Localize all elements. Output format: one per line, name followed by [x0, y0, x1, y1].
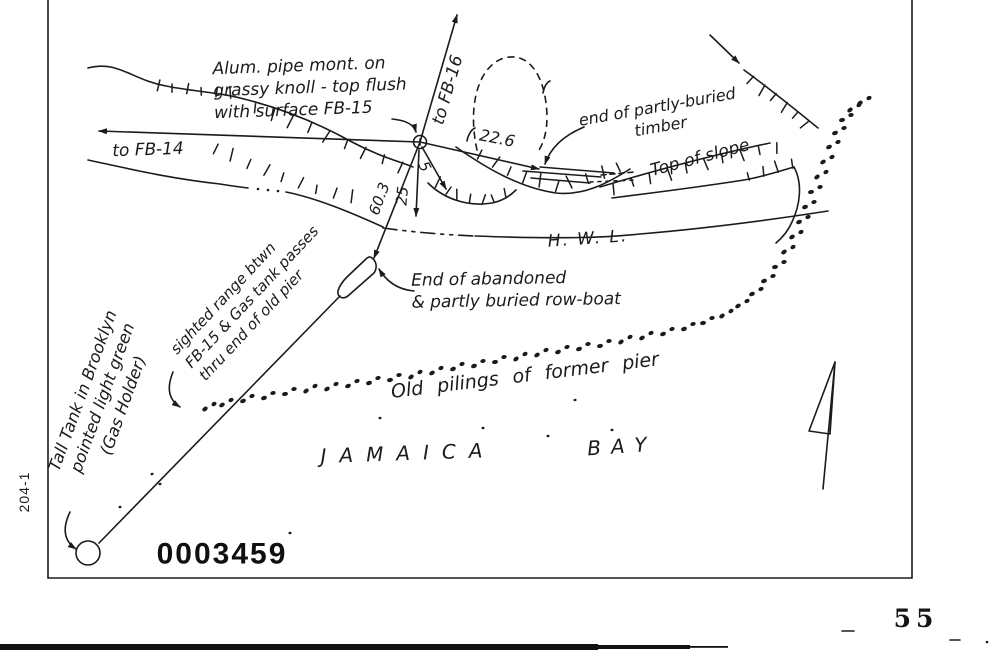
leader-gas-tank [65, 512, 76, 549]
leader-station-note [392, 119, 416, 132]
leader-pier-end [169, 372, 180, 407]
to-fb14-label: to FB-14 [112, 138, 184, 163]
distance-25: 25 [392, 186, 413, 207]
line-dist-25 [416, 150, 419, 216]
gas-tank-symbol [76, 541, 100, 565]
scanned-survey-sketch-page: Alum. pipe mont. on grassy knoll - top f… [0, 0, 999, 650]
page-number: 55 [894, 603, 939, 636]
bottom-scan-bar [0, 631, 988, 650]
bay-label: BAY [586, 431, 657, 462]
margin-number: 204-1 [15, 472, 33, 513]
leader-rowboat-note [379, 269, 414, 291]
station-description-note: Alum. pipe mont. on grassy knoll - top f… [212, 52, 408, 125]
slope-arrow [710, 35, 739, 63]
rowboat-note: End of abandoned & partly buried row-boa… [411, 266, 621, 314]
rowboat-shape [338, 257, 376, 298]
stamp-number: 0003459 [157, 535, 288, 574]
north-arrow [809, 362, 835, 489]
leader-timber-note [545, 127, 584, 164]
